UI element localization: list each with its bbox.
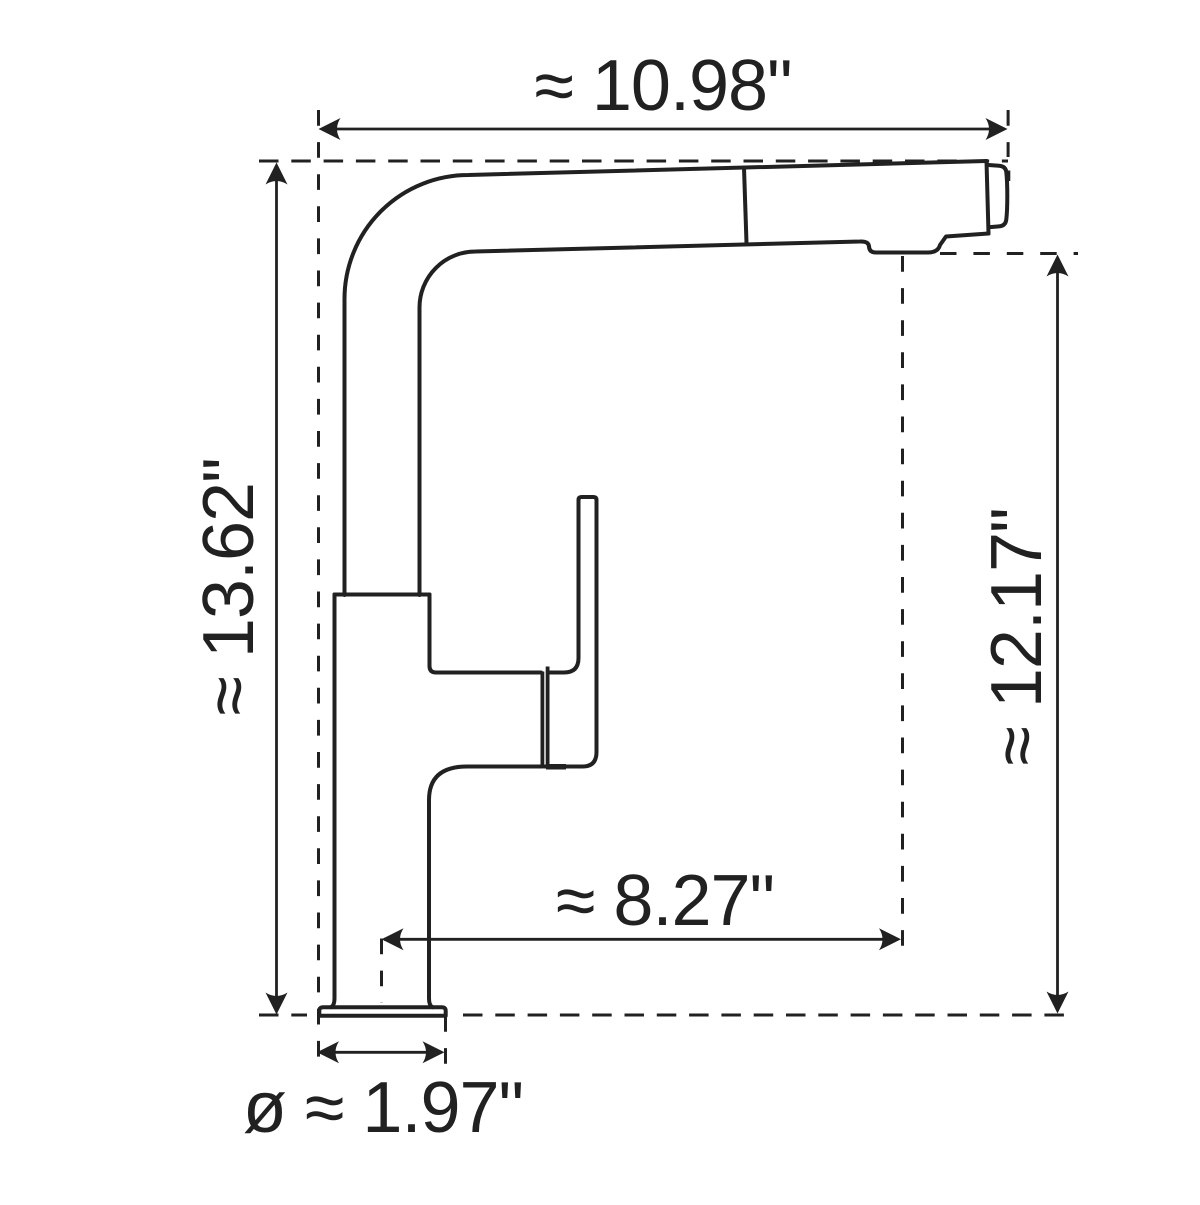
svg-text:ø ≈ 1.97": ø ≈ 1.97" bbox=[243, 1068, 523, 1148]
svg-text:≈ 12.17": ≈ 12.17" bbox=[977, 508, 1057, 765]
svg-text:≈ 8.27": ≈ 8.27" bbox=[556, 861, 774, 941]
svg-text:≈ 10.98": ≈ 10.98" bbox=[534, 46, 791, 126]
svg-text:≈ 13.62": ≈ 13.62" bbox=[189, 458, 269, 715]
